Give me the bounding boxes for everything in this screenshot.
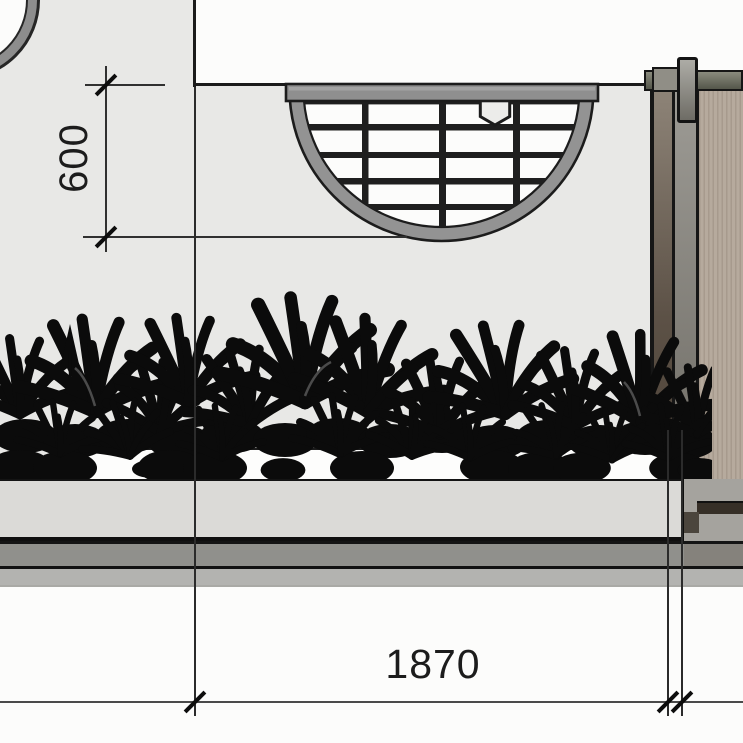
door-bottom-rail [697,501,743,514]
paving-band-light [0,569,743,585]
planter-wall [0,479,684,541]
dim-1870-ext-right1 [667,430,669,716]
plan-drawing: 600 [0,0,743,743]
top-white-area [196,0,648,84]
dim-600-ext-bottom [83,236,407,238]
door-bottom-step [684,512,699,533]
door-hinge-post [677,57,698,123]
door-bracket [652,67,679,92]
dim-600-label: 600 [52,108,96,208]
dim-600-line [105,66,107,252]
paving-band-dark [0,544,743,566]
paving-band-dark-right [684,544,743,566]
dim-1870-label: 1870 [350,641,516,687]
wall-edge-vertical [193,0,196,87]
dim-600-ext-top [85,84,165,86]
dim-1870-ext-right2 [681,430,683,716]
dim-1870-ext-left [194,87,196,716]
paving-band-edge [0,585,743,587]
round-grate [281,81,603,245]
dim-1870-line [0,701,743,703]
planting-bed [0,286,712,482]
